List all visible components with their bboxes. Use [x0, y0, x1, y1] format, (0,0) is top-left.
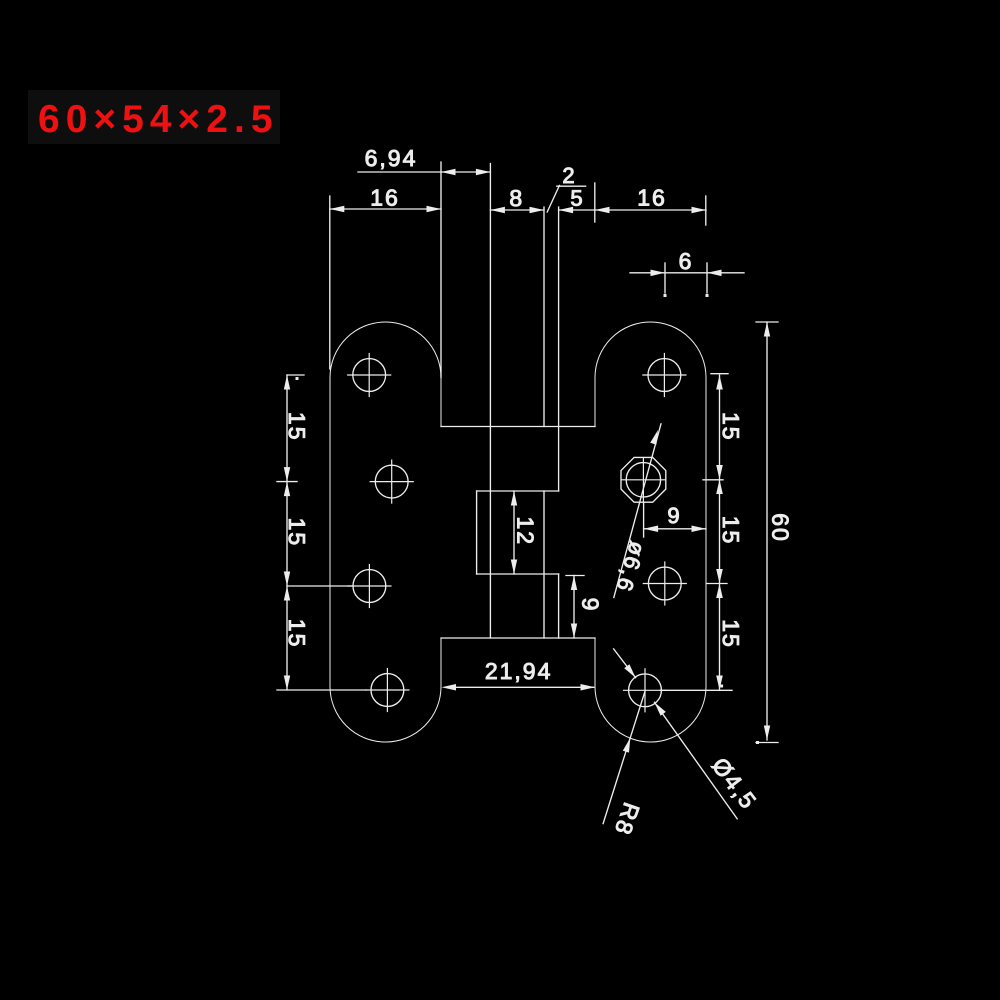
- svg-text:R8: R8: [609, 799, 644, 839]
- svg-text:16: 16: [370, 185, 400, 211]
- svg-text:6: 6: [679, 248, 694, 274]
- svg-text:15: 15: [284, 412, 310, 442]
- svg-text:5: 5: [570, 186, 584, 211]
- svg-text:21,94: 21,94: [485, 658, 553, 684]
- svg-text:9: 9: [578, 598, 604, 613]
- svg-text:16: 16: [637, 185, 667, 211]
- svg-text:15: 15: [718, 619, 744, 649]
- svg-text:15: 15: [284, 518, 310, 548]
- svg-text:15: 15: [718, 516, 744, 546]
- svg-text:8: 8: [509, 185, 524, 211]
- svg-text:Ø4,5: Ø4,5: [707, 753, 763, 815]
- svg-text:15: 15: [718, 412, 744, 442]
- svg-text:2: 2: [562, 163, 576, 188]
- svg-text:6,94: 6,94: [365, 145, 418, 171]
- svg-text:9: 9: [667, 503, 681, 528]
- svg-text:12: 12: [513, 517, 539, 547]
- svg-text:60: 60: [768, 513, 794, 543]
- svg-text:ø6,6: ø6,6: [611, 539, 650, 596]
- svg-text:15: 15: [284, 619, 310, 649]
